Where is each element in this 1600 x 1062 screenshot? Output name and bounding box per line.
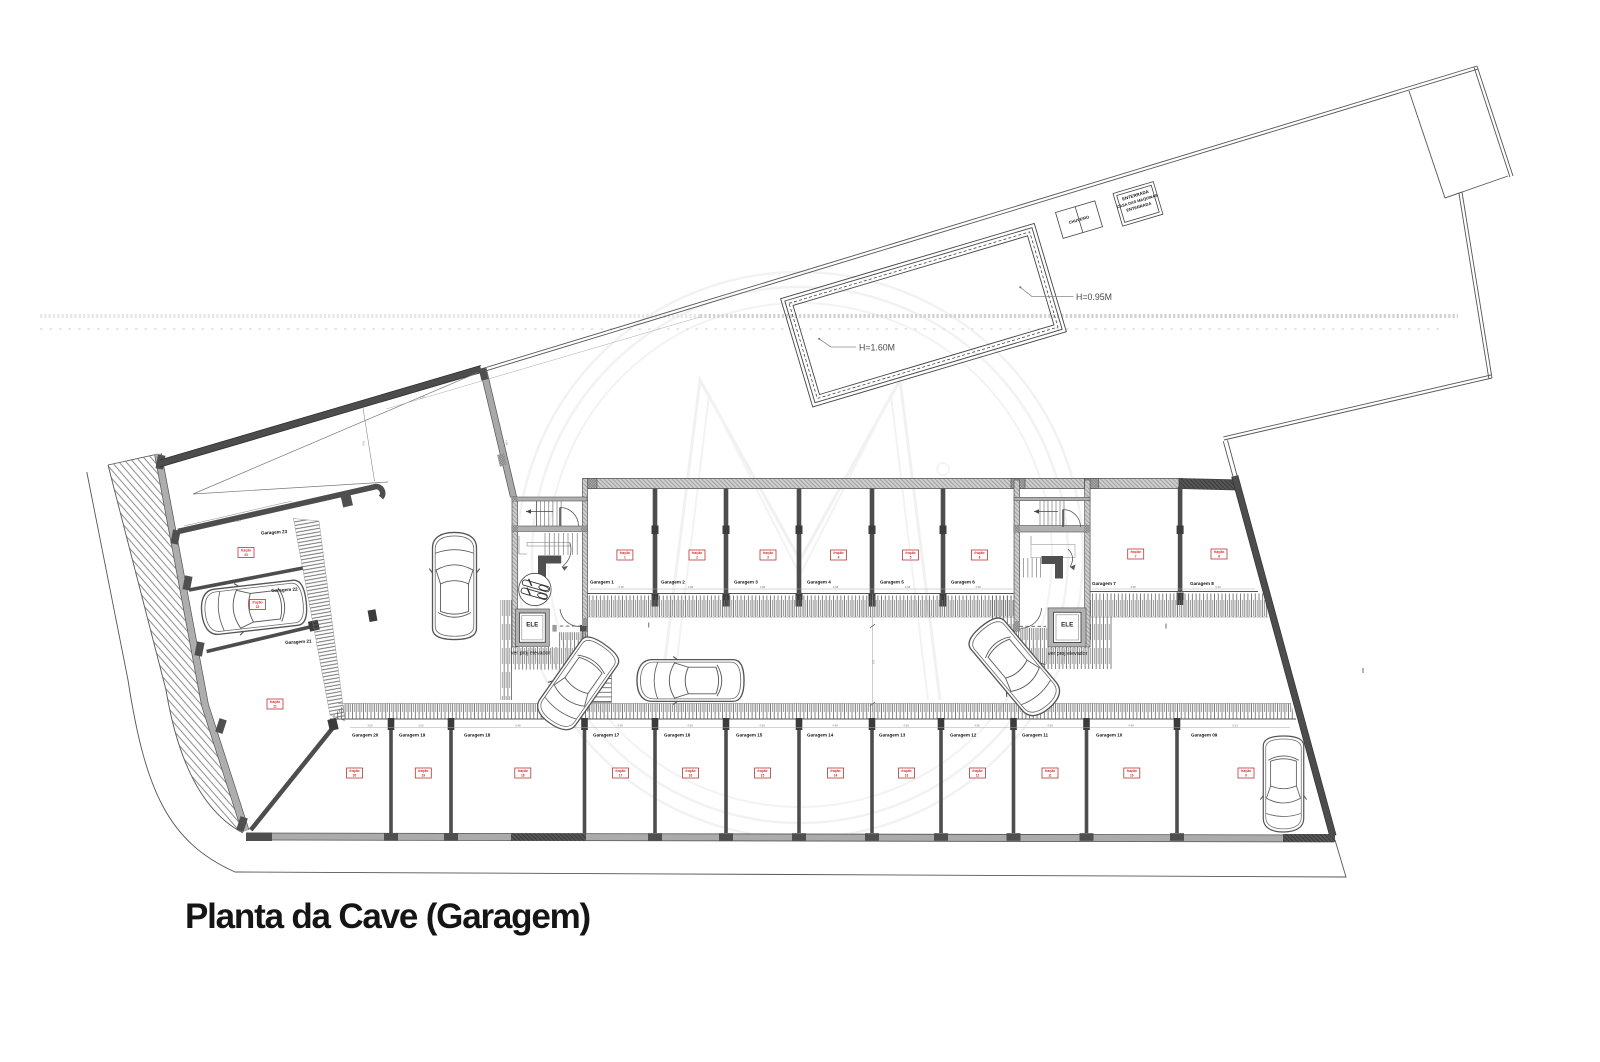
svg-text:ver proj elevador: ver proj elevador [511,651,551,657]
svg-text:4.98: 4.98 [1047,723,1053,727]
svg-text:Garagem 1: Garagem 1 [590,580,614,585]
svg-text:Garagem 7: Garagem 7 [1092,581,1116,586]
svg-text:5.48: 5.48 [1215,585,1221,589]
svg-text:Garagem 4: Garagem 4 [807,580,831,585]
svg-text:Garagem 21: Garagem 21 [285,639,312,645]
svg-text:fração: fração [692,551,702,555]
svg-text:fração: fração [349,769,359,773]
svg-text:21: 21 [273,705,277,709]
svg-text:12: 12 [976,774,980,778]
svg-text:3.00: 3.00 [418,723,424,727]
svg-text:ver proj elevador: ver proj elevador [1048,651,1088,657]
svg-text:fração: fração [1131,550,1141,554]
svg-text:Garagem 09: Garagem 09 [1191,733,1218,738]
svg-text:Garagem 8: Garagem 8 [1190,581,1214,586]
svg-text:5.48: 5.48 [618,585,624,589]
svg-text:Garagem 13: Garagem 13 [879,733,906,738]
svg-text:fração: fração [252,601,262,605]
svg-text:fração: fração [418,769,428,773]
svg-text:4.98: 4.98 [833,585,839,589]
svg-text:fração: fração [833,551,843,555]
svg-text:Garagem 11: Garagem 11 [1022,733,1048,738]
svg-text:19: 19 [422,774,426,778]
svg-text:fração: fração [974,551,984,555]
svg-text:Garagem 5: Garagem 5 [880,580,904,585]
svg-text:13: 13 [905,774,909,778]
svg-text:fração: fração [830,769,840,773]
svg-text:4.98: 4.98 [905,585,911,589]
svg-text:4.98: 4.98 [760,585,766,589]
svg-text:fração: fração [972,769,982,773]
svg-text:fração: fração [615,769,625,773]
svg-text:Garagem 3: Garagem 3 [734,580,758,585]
svg-text:Garagem 10: Garagem 10 [1096,733,1123,738]
svg-text:fração: fração [757,769,767,773]
svg-text:20: 20 [353,774,357,778]
svg-text:11: 11 [1048,774,1052,778]
svg-text:Garagem 23: Garagem 23 [261,529,288,535]
svg-text:9: 9 [1245,774,1247,778]
svg-text:10: 10 [1130,774,1134,778]
svg-text:fração: fração [763,551,773,555]
svg-text:4.98: 4.98 [974,723,980,727]
svg-text:Garagem 17: Garagem 17 [593,733,620,738]
svg-text:6: 6 [979,556,981,560]
svg-text:Garagem 6: Garagem 6 [951,580,975,585]
svg-text:5.23: 5.23 [1232,723,1238,727]
svg-text:5.48: 5.48 [617,723,623,727]
svg-text:fração: fração [518,769,528,773]
svg-text:22: 22 [256,605,260,609]
svg-text:6.0: 6.0 [872,660,876,664]
svg-text:Planta da Cave (Garagem): Planta da Cave (Garagem) [185,897,590,936]
svg-text:4.98: 4.98 [688,585,694,589]
svg-text:4.98: 4.98 [832,723,838,727]
svg-text:Garagem 2: Garagem 2 [661,580,685,585]
svg-text:Garagem 14: Garagem 14 [807,733,834,738]
svg-text:4.98: 4.98 [1130,585,1136,589]
svg-text:3: 3 [767,556,769,560]
svg-text:5: 5 [910,556,912,560]
svg-text:fração: fração [685,769,695,773]
svg-text:17: 17 [619,774,623,778]
svg-text:23: 23 [244,553,248,557]
svg-text:fração: fração [1241,769,1251,773]
svg-text:18: 18 [521,774,525,778]
svg-text:fração: fração [1045,769,1055,773]
svg-text:4.98: 4.98 [687,723,693,727]
svg-text:1: 1 [624,556,626,560]
svg-text:4.98: 4.98 [1128,723,1134,727]
svg-text:CHUVEIRO: CHUVEIRO [1068,214,1090,225]
svg-text:fração: fração [1127,769,1137,773]
svg-text:Garagem 15: Garagem 15 [736,733,763,738]
svg-text:Garagem 18: Garagem 18 [464,733,491,738]
svg-text:4.98: 4.98 [759,723,765,727]
svg-text:fração: fração [270,700,280,704]
svg-text:8: 8 [1218,555,1220,559]
svg-text:fração: fração [1214,550,1224,554]
svg-text:16: 16 [689,774,693,778]
svg-text:Garagem 19: Garagem 19 [399,733,426,738]
svg-text:4: 4 [838,556,840,560]
svg-text:H=0.95M: H=0.95M [1076,292,1112,302]
svg-text:Garagem 12: Garagem 12 [950,733,977,738]
svg-text:4.98: 4.98 [903,723,909,727]
svg-text:3.00: 3.00 [367,723,373,727]
svg-text:Garagem 20: Garagem 20 [352,733,379,738]
svg-text:fração: fração [620,551,630,555]
svg-text:ELE: ELE [526,622,538,629]
svg-text:Garagem 16: Garagem 16 [664,733,691,738]
svg-text:2: 2 [696,556,698,560]
svg-text:3.51: 3.51 [361,440,366,446]
svg-text:fração: fração [241,549,251,553]
svg-text:14: 14 [834,774,838,778]
svg-text:ELE: ELE [1061,622,1073,629]
svg-text:fração: fração [905,551,915,555]
svg-text:15: 15 [761,774,765,778]
svg-text:fração: fração [901,769,911,773]
svg-text:7: 7 [1135,555,1137,559]
svg-text:6.48: 6.48 [515,723,521,727]
svg-text:7.93: 7.93 [504,439,509,445]
svg-text:H=1.60M: H=1.60M [859,343,895,353]
svg-text:4.98: 4.98 [975,585,981,589]
